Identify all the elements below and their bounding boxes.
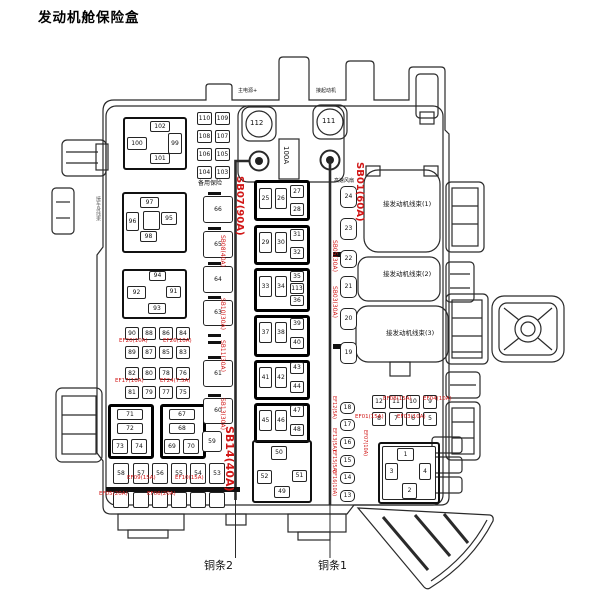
diagram-label: SB08(40A) — [219, 235, 225, 267]
diagram-label: EF13(5A) — [331, 428, 336, 451]
fuse-box-74: 74 — [131, 439, 147, 454]
diagram-label: 高速风扇 — [334, 179, 354, 184]
fuse-box-30: 30 — [275, 232, 287, 253]
left-connector-small — [52, 188, 74, 234]
diagram-label: 接起动机 — [316, 89, 336, 94]
cavity — [209, 492, 225, 508]
fuse-box-65: 65 — [203, 231, 233, 258]
fuse-box-77: 77 — [159, 386, 173, 399]
fuse-box-71: 71 — [117, 409, 143, 420]
fuse-box-95: 95 — [161, 212, 177, 225]
fuse-box-69: 69 — [164, 439, 180, 454]
harness-connector-3 — [356, 306, 448, 376]
fuse-box-67: 67 — [169, 409, 195, 420]
fuse-box-107: 107 — [215, 130, 230, 143]
diagram-label: EF04(10A) — [423, 397, 452, 403]
fuse-box-87: 87 — [142, 346, 156, 359]
fuse-box-diagram: 发动机舱保险盒 — [0, 0, 603, 599]
cavity — [143, 211, 160, 230]
fuse-box-32: 32 — [290, 247, 304, 259]
fuse-box-21: 21 — [340, 276, 357, 298]
fuse-box-37: 37 — [259, 322, 272, 343]
fan-flange — [358, 508, 493, 589]
fuse-box-41: 41 — [259, 367, 272, 388]
fuse-box-64: 64 — [203, 266, 233, 293]
fuse-box-108: 108 — [197, 130, 212, 143]
right-connector-2 — [446, 262, 474, 302]
fuse-box-102: 102 — [150, 121, 170, 132]
fuse-box-29: 29 — [259, 232, 272, 253]
diagram-label: 接发动机线束(3) — [386, 330, 434, 337]
fuse-box-60: 60 — [203, 398, 233, 424]
diagram-label: SB01(60A) — [354, 162, 364, 222]
fuse-box-15: 15 — [340, 455, 355, 467]
fuse-box-28: 28 — [290, 203, 304, 216]
fuse-box-1: 1 — [397, 448, 414, 461]
fuse-box-113: 113 — [290, 283, 304, 294]
fuse-box-104: 104 — [197, 166, 212, 179]
diagram-label: 接发动机线束(2) — [383, 271, 431, 278]
fuse-box-33: 33 — [259, 276, 272, 297]
fuse-box-68: 68 — [169, 423, 195, 434]
fuse-box-63: 63 — [203, 300, 233, 326]
fuse-box-73: 73 — [112, 439, 128, 454]
harness-connector-2 — [358, 257, 440, 301]
fuse-box-80: 80 — [142, 367, 156, 380]
harness-connector-1 — [364, 166, 440, 252]
fuse-box-26: 26 — [275, 188, 287, 209]
diagram-label: EF01(15A) — [355, 415, 384, 421]
diagram-label: EF03(10A) — [397, 415, 426, 421]
fuse-box-103: 103 — [215, 166, 230, 179]
fuse-box-16: 16 — [340, 437, 355, 449]
fuse-box-45: 45 — [259, 410, 272, 431]
diagram-label: EF26(10A) — [163, 339, 192, 345]
mount-boss — [492, 296, 564, 362]
fuse-box-48: 48 — [290, 424, 304, 436]
fuse-box-42: 42 — [275, 367, 287, 388]
fuse-box-13: 13 — [340, 490, 355, 502]
diagram-label: SB14(40A) — [224, 426, 235, 492]
diagram-label: SB13(30A) — [219, 398, 225, 430]
fuse-box-3: 3 — [385, 463, 398, 480]
fuse-box-14: 14 — [340, 472, 355, 484]
fuse-box-75: 75 — [176, 386, 190, 399]
fuse-box-98: 98 — [140, 231, 157, 242]
diagram-label: 112 — [250, 120, 263, 127]
fuse-box-91: 91 — [166, 286, 181, 298]
fuse-box-27: 27 — [290, 185, 304, 198]
diagram-label: 铜条2 — [204, 560, 233, 571]
right-connector-1 — [446, 182, 484, 252]
diagram-label: 主电源+ — [238, 89, 257, 94]
fuse-box-40: 40 — [290, 337, 304, 349]
diagram-label: SB05(30A) — [331, 240, 337, 272]
diagram-label: EF24(7.5A) — [160, 379, 190, 385]
fuse-box-46: 46 — [275, 410, 287, 431]
fuse-box-93: 93 — [148, 303, 166, 314]
diagram-label: SB07(90A) — [234, 176, 244, 236]
fuse-box-94: 94 — [149, 271, 166, 281]
bottom-tabs — [118, 514, 346, 540]
left-connector-top — [62, 140, 108, 176]
fuse-box-17: 17 — [340, 419, 355, 431]
fuse-box-44: 44 — [290, 381, 304, 393]
diagram-label: EF08(15A) — [383, 397, 412, 403]
fuse-box-89: 89 — [125, 346, 139, 359]
fuse-box-100: 100 — [127, 137, 147, 150]
diagram-label: EF12(5A) — [331, 396, 336, 419]
fuse-box-109: 109 — [215, 112, 230, 125]
fuse-box-43: 43 — [290, 362, 304, 374]
fuse-box-20: 20 — [340, 308, 357, 330]
fuse-box-99: 99 — [168, 133, 182, 154]
fuse-box-83: 83 — [176, 346, 190, 359]
fuse-box-39: 39 — [290, 318, 304, 330]
left-connector-bottom — [56, 388, 102, 462]
fuse-box-51: 51 — [292, 470, 307, 482]
fuse-box-59: 59 — [202, 431, 222, 452]
fuse-box-47: 47 — [290, 405, 304, 417]
diagram-label: EF06(20A) — [147, 492, 176, 498]
diagram-label: 接车身线束 — [95, 196, 100, 221]
diagram-label: 接发动机线束(1) — [383, 201, 431, 208]
diagram-label: 备用保险 — [198, 181, 222, 187]
fuse-box-31: 31 — [290, 229, 304, 241]
diagram-label: EF16(10A) — [331, 470, 336, 496]
diagram-label: EF07(10A) — [362, 430, 367, 456]
fuse-box-22: 22 — [340, 250, 357, 268]
fuse-box-25: 25 — [259, 188, 272, 209]
fuse-box-72: 72 — [117, 423, 143, 434]
fuse-box-79: 79 — [142, 386, 156, 399]
fuse-box-35: 35 — [290, 271, 304, 282]
fuse-box-19: 19 — [340, 342, 357, 364]
fuse-box-110: 110 — [197, 112, 212, 125]
diagram-label: EF10(15A) — [175, 476, 204, 482]
diagram-label: 铜条1 — [318, 560, 347, 571]
right-connector-3 — [446, 294, 488, 364]
fuse-box-49: 49 — [274, 486, 290, 498]
fuse-box-81: 81 — [125, 386, 139, 399]
fuse-box-38: 38 — [275, 322, 287, 343]
diagram-label: SB11(30A) — [219, 340, 225, 372]
diagram-label: EF20(10A) — [119, 339, 148, 345]
diagram-label: EF05(20A) — [99, 492, 128, 498]
fuse-box-36: 36 — [290, 295, 304, 306]
fuse-box-105: 105 — [215, 148, 230, 161]
fuse-box-4: 4 — [419, 463, 431, 480]
fuse-box-85: 85 — [159, 346, 173, 359]
fuse-box-92: 92 — [127, 286, 146, 299]
diagram-label: 111 — [322, 118, 335, 125]
page-title: 发动机舱保险盒 — [38, 6, 140, 26]
fuse-box-97: 97 — [140, 197, 159, 208]
right-connector-4 — [446, 372, 480, 460]
fuse-box-2: 2 — [402, 483, 417, 499]
diagram-label: SB03(30A) — [331, 286, 337, 318]
cavity — [190, 492, 206, 508]
fuse-box-66: 66 — [203, 196, 233, 223]
fuse-box-106: 106 — [197, 148, 212, 161]
diagram-label: 100A — [282, 146, 289, 164]
fuse-box-101: 101 — [150, 153, 170, 164]
fuse-box-50: 50 — [271, 446, 287, 460]
fuse-box-96: 96 — [126, 212, 139, 231]
diagram-label: SB10(30A) — [219, 298, 225, 330]
fuse-box-18: 18 — [340, 402, 355, 414]
diagram-label: EF17(10A) — [115, 379, 144, 385]
fuse-box-34: 34 — [275, 276, 287, 297]
fuse-box-61: 61 — [203, 360, 233, 387]
fuse-box-52: 52 — [257, 470, 272, 484]
diagram-label: EF09(15A) — [127, 476, 156, 482]
fuse-box-70: 70 — [183, 439, 199, 454]
